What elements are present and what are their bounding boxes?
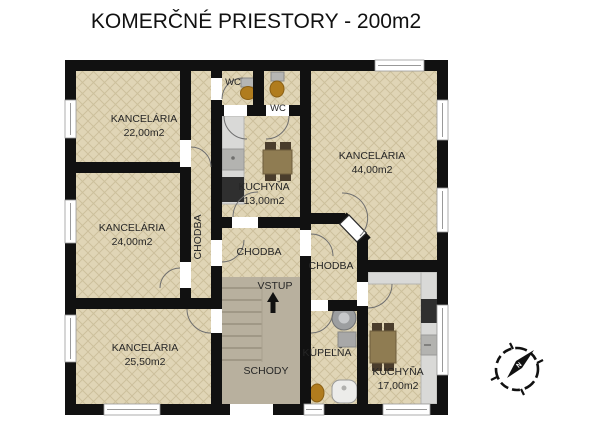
room-label-stairs: SCHODY [244, 365, 289, 377]
room-label-hall-west: CHODBA [192, 215, 204, 260]
faucet-icon [231, 156, 235, 160]
door-opening [232, 217, 258, 228]
door-opening [211, 240, 222, 266]
window [65, 200, 76, 243]
room-area-office3: 25,50m2 [125, 356, 166, 368]
room-area-office4: 44,00m2 [352, 164, 393, 176]
wall-segment [76, 162, 180, 173]
wall-segment [357, 260, 437, 272]
stair-hall-floor [222, 277, 300, 404]
compass-icon: N [491, 343, 543, 395]
room-label-wc1: WC [225, 77, 241, 88]
toilet-icon [310, 384, 324, 402]
chair-icon [372, 323, 382, 331]
floor-plan: KANCELÁRIA 22,00m2 KANCELÁRIA 24,00m2 KA… [65, 60, 448, 415]
window [375, 60, 424, 71]
washer-door-icon [339, 313, 350, 324]
room-area-office1: 22,00m2 [124, 127, 165, 139]
bathtub-icon [332, 380, 357, 403]
room-label-hall-east: CHODBA [309, 260, 354, 272]
room-area-office2: 24,00m2 [112, 236, 153, 248]
window [65, 315, 76, 362]
wall-segment [76, 298, 222, 309]
drain-icon [342, 386, 347, 391]
window [304, 404, 324, 415]
room-area-kitchen-large: 17,00m2 [378, 380, 419, 392]
stove-icon [421, 299, 437, 323]
door-opening [211, 78, 222, 100]
chair-icon [265, 142, 276, 150]
window [383, 404, 430, 415]
door-opening [311, 300, 328, 311]
room-area-kitchen-small: 13,00m2 [244, 195, 285, 207]
door-opening [300, 230, 311, 256]
room-label-kitchen-small: KUCHYŇA [238, 180, 289, 193]
chair-icon [384, 323, 394, 331]
chair-icon [280, 142, 291, 150]
toilet-tank-icon [241, 78, 255, 87]
room-label-entrance: VSTUP [257, 280, 292, 292]
room-label-office2: KANCELÁRIA [99, 221, 166, 234]
door-opening [357, 282, 368, 306]
room-label-office3: KANCELÁRIA [112, 341, 179, 354]
window [104, 404, 160, 415]
room-label-kitchen-large: KUCHYŇA [372, 365, 423, 378]
room-label-wc2: WC [270, 103, 286, 114]
table-icon [370, 331, 396, 363]
door-opening [180, 262, 191, 288]
page-title: KOMERČNÉ PRIESTORY - 200m2 [91, 10, 421, 33]
room-label-office1: KANCELÁRIA [111, 112, 178, 125]
door-opening [224, 105, 247, 116]
door-opening [180, 140, 191, 167]
window [437, 100, 448, 140]
room-label-office4: KANCELÁRIA [339, 149, 406, 162]
window [437, 188, 448, 232]
room-label-bathroom: KÚPEĽŇA [302, 346, 351, 359]
wall-segment [253, 71, 264, 105]
window [65, 100, 76, 138]
entrance-door [230, 404, 273, 415]
room-label-hall-center: CHODBA [237, 246, 282, 258]
toilet-icon [270, 81, 284, 97]
toilet-tank-icon [271, 72, 284, 81]
stairs [222, 277, 300, 404]
floor-plan-canvas: KOMERČNÉ PRIESTORY - 200m2 [0, 0, 600, 426]
door-opening [211, 309, 222, 333]
wall-segment [211, 71, 222, 404]
window [437, 305, 448, 375]
floor-plan-page: KOMERČNÉ PRIESTORY - 200m2 [0, 0, 600, 426]
table-icon [263, 150, 292, 174]
cabinet-icon [338, 332, 356, 347]
